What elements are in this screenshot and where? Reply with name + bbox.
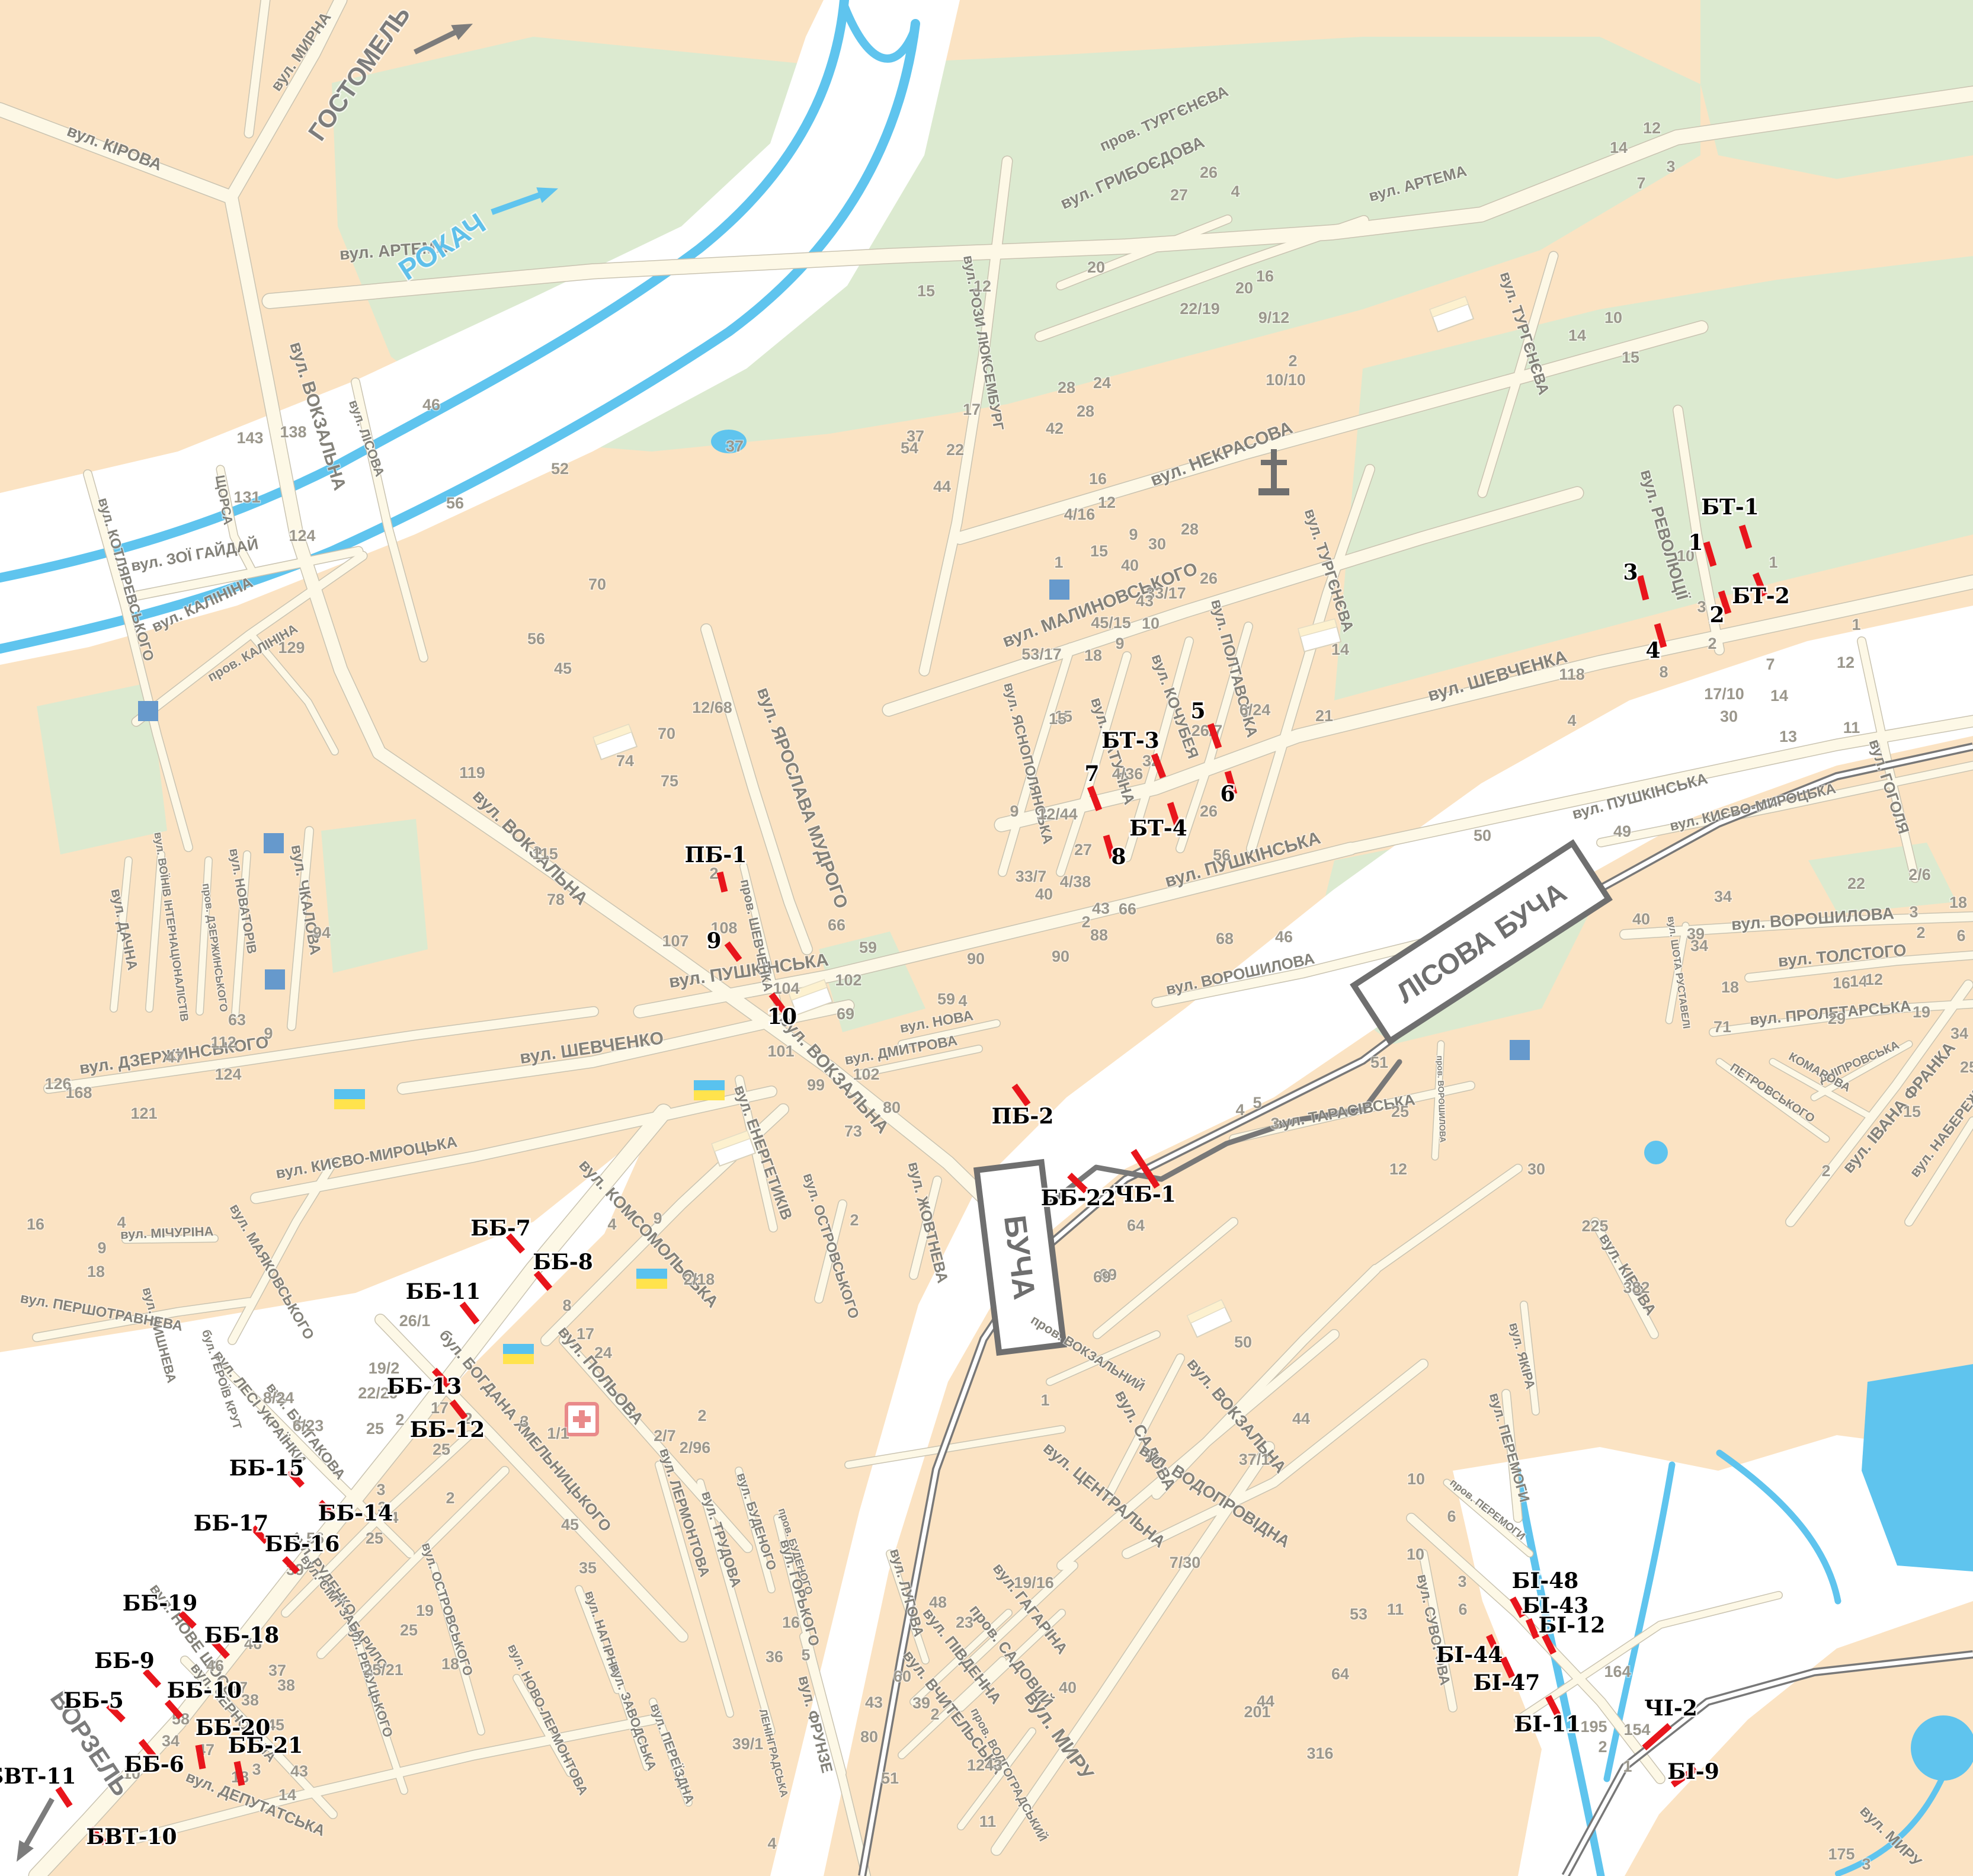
house-number: 14 [278, 1786, 296, 1804]
house-number: 18 [87, 1263, 105, 1280]
billboard-marker-label-ББ-10: ББ-10 [167, 1678, 242, 1703]
billboard-marker-label-БТ-1: БТ-1 [1701, 495, 1759, 520]
house-number: 3 [1458, 1573, 1466, 1590]
house-number: 102 [853, 1065, 879, 1083]
billboard-marker-label-7: 7 [1084, 761, 1099, 786]
house-number: 25 [366, 1529, 383, 1547]
house-number: 2 [1916, 924, 1925, 942]
house-number: 43 [1136, 592, 1154, 610]
house-number: 3 [1697, 598, 1706, 616]
house-number: 4 [117, 1214, 126, 1231]
house-number: 56 [1213, 846, 1231, 864]
house-number: 3 [520, 1413, 529, 1430]
house-number: 14 [1568, 326, 1586, 344]
house-number: 225 [1581, 1217, 1608, 1235]
map-container: ЛІСОВА БУЧАБУЧАвул. МИРНАвул. КІРОВАвул.… [0, 0, 1973, 1876]
house-number: 18 [1084, 646, 1102, 664]
house-number: 30 [1720, 707, 1738, 725]
house-number: 107 [662, 932, 688, 950]
house-number: 39 [912, 1694, 930, 1712]
house-number: 6 [1458, 1600, 1467, 1618]
house-number: 94 [313, 924, 331, 942]
house-number: 1 [1054, 553, 1063, 571]
house-number: 73 [844, 1122, 862, 1140]
house-number: 3 [1862, 1855, 1870, 1873]
house-number: 131 [233, 488, 260, 506]
house-number: 37/1 [1239, 1451, 1270, 1468]
billboard-marker-label-2: 2 [1709, 603, 1724, 628]
pond-round [1911, 1715, 1973, 1781]
house-number: 9 [1129, 526, 1138, 543]
billboard-marker-dash-ПБ-1 [720, 872, 725, 892]
house-number: 9 [1115, 635, 1124, 652]
house-number: 78 [547, 891, 565, 908]
ukraine-flag-icon [334, 1089, 365, 1109]
house-number: 11 [979, 1813, 997, 1830]
house-number: 15 [1622, 348, 1639, 366]
house-number: 45 [554, 660, 572, 677]
house-number: 47 [166, 1048, 184, 1066]
billboard-marker-label-ББ-21: ББ-21 [228, 1733, 303, 1758]
billboard-marker-dash-ББ-21 [237, 1762, 242, 1785]
house-number: 2 [697, 1407, 706, 1424]
house-number: 3 [1666, 158, 1675, 175]
public-building-square [1049, 580, 1069, 600]
billboard-marker-label-ББ-22: ББ-22 [1041, 1186, 1116, 1211]
house-number: 36 [766, 1648, 783, 1666]
house-number: 154 [1623, 1721, 1650, 1739]
house-number: 22 [1847, 875, 1865, 892]
house-number: 15 [1903, 1103, 1921, 1121]
house-number: 1 [1769, 553, 1777, 571]
house-number: 99 [807, 1076, 825, 1094]
house-number: 9 [653, 1209, 662, 1227]
house-number: 25 [1960, 1058, 1973, 1076]
house-number: 44 [1292, 1410, 1310, 1427]
house-number: 4/16 [1064, 505, 1096, 523]
house-number: 195 [1580, 1718, 1607, 1736]
billboard-marker-label-ПБ-2: ПБ-2 [992, 1104, 1054, 1129]
house-number: 3 [376, 1481, 385, 1499]
house-number: 2 [850, 1211, 859, 1229]
house-number: 17 [431, 1399, 449, 1417]
house-number: 46 [1275, 928, 1293, 946]
house-number: 21 [1315, 707, 1333, 725]
house-number: 6 [1447, 1507, 1456, 1525]
house-number: 115 [532, 845, 558, 863]
house-number: 119 [459, 764, 485, 782]
house-number: 2/18 [684, 1270, 715, 1288]
house-number: 12 [1389, 1160, 1407, 1178]
house-number: 69 [837, 1005, 854, 1023]
house-number: 6 [1956, 927, 1965, 945]
house-number: 9 [97, 1239, 106, 1257]
house-number: 80 [883, 1099, 901, 1116]
house-number: 33/7 [1016, 867, 1047, 885]
house-number: 1 [1623, 1757, 1632, 1775]
house-number: 9 [264, 1025, 273, 1042]
ukraine-flag-icon [636, 1269, 667, 1289]
public-building-square [265, 969, 285, 990]
house-number: 19 [1913, 1003, 1930, 1021]
house-number: 11 [1843, 719, 1860, 737]
house-number: 40 [1121, 556, 1139, 574]
house-number: 2 [1708, 635, 1716, 652]
house-number: 56 [527, 630, 545, 648]
billboard-marker-label-БВТ-10: БВТ-10 [86, 1824, 177, 1849]
house-number: 7/30 [1170, 1554, 1201, 1571]
house-number: 4/36 [1112, 765, 1144, 783]
house-number: 20 [1235, 279, 1253, 297]
house-number: 10 [1407, 1545, 1424, 1563]
house-number: 4 [1567, 712, 1576, 729]
house-number: 15 [917, 282, 935, 300]
billboard-marker-label-БІ-44: БІ-44 [1436, 1643, 1503, 1667]
house-number: 201 [1244, 1703, 1270, 1721]
house-number: 70 [588, 575, 606, 593]
house-number: 69 [1093, 1268, 1111, 1286]
house-number: 68 [1216, 930, 1234, 947]
house-number: 16 [27, 1215, 44, 1233]
house-number: 54 [901, 439, 918, 457]
house-number: 43 [985, 1756, 1002, 1774]
house-number: 34 [1714, 888, 1732, 905]
park-west-2 [321, 819, 428, 973]
house-number: 27 [1170, 186, 1188, 204]
house-number: 17 [963, 401, 981, 418]
billboard-marker-label-6: 6 [1220, 782, 1235, 806]
house-number: 45/15 [1091, 614, 1131, 632]
billboard-marker-label-ББ-14: ББ-14 [318, 1501, 393, 1526]
house-number: 39/1 [732, 1735, 764, 1753]
house-number: 11 [1387, 1600, 1404, 1618]
billboard-marker-label-ББ-6: ББ-6 [124, 1752, 184, 1777]
house-number: 20 [1087, 258, 1105, 276]
house-number: 1/1 [547, 1424, 569, 1442]
house-number: 16 [782, 1614, 800, 1631]
house-number: 4 [607, 1215, 616, 1233]
billboard-marker-label-БІ-47: БІ-47 [1474, 1670, 1540, 1695]
house-number: 24 [594, 1344, 612, 1362]
house-number: 1 [1852, 616, 1860, 633]
house-number: 24 [1093, 374, 1111, 392]
billboard-marker-dash-ББ-20 [198, 1745, 203, 1769]
billboard-marker-label-ББ-7: ББ-7 [470, 1216, 531, 1241]
house-number: 53/17 [1021, 645, 1062, 663]
house-number: 63 [228, 1011, 246, 1029]
house-number: 7 [1636, 174, 1645, 192]
house-number: 34 [162, 1732, 180, 1750]
house-number: 48 [929, 1593, 947, 1611]
billboard-marker-label-ББ-5: ББ-5 [63, 1688, 124, 1713]
house-number: 12 [967, 1756, 985, 1774]
house-number: 25 [366, 1420, 384, 1438]
house-number: 59 [859, 939, 877, 956]
house-number: 53 [1350, 1605, 1367, 1623]
billboard-marker-label-ББ-18: ББ-18 [204, 1623, 280, 1648]
house-number: 25/21 [363, 1661, 403, 1679]
house-number: 28 [1181, 520, 1199, 538]
house-number: 143 [236, 429, 263, 447]
house-number: 104 [773, 979, 799, 997]
house-number: 40 [1059, 1679, 1077, 1696]
house-number: 2/7 [654, 1427, 676, 1445]
billboard-marker-label-ББ-15: ББ-15 [229, 1456, 305, 1481]
house-number: 10 [1407, 1470, 1425, 1488]
house-number: 124 [214, 1065, 241, 1083]
billboard-marker-label-БВТ-11: БВТ-11 [0, 1764, 76, 1789]
house-number: 56 [446, 494, 464, 512]
house-number: 46 [206, 1657, 224, 1675]
bucha-city-map: ЛІСОВА БУЧАБУЧАвул. МИРНАвул. КІРОВАвул.… [0, 0, 1973, 1876]
house-number: 3 [252, 1760, 261, 1778]
house-number: 10/10 [1266, 371, 1306, 389]
house-number: 43 [290, 1762, 308, 1780]
house-number: 4 [1235, 1101, 1244, 1119]
house-number: 4/38 [1060, 873, 1091, 891]
house-number: 66 [828, 916, 845, 934]
house-number: 12 [1837, 654, 1855, 671]
house-number: 7 [1766, 655, 1775, 673]
public-building-square [138, 701, 158, 721]
house-number: 118 [1559, 665, 1585, 683]
billboard-marker-label-БТ-4: БТ-4 [1129, 816, 1187, 841]
house-number: 16 [1256, 267, 1274, 285]
house-number: 138 [280, 423, 306, 441]
house-number: 42 [1046, 420, 1064, 437]
house-number: 25 [1391, 1103, 1409, 1121]
house-number: 102 [835, 971, 861, 989]
house-number: 168 [65, 1084, 92, 1102]
house-number: 25 [400, 1621, 418, 1639]
house-number: 90 [1052, 947, 1069, 965]
billboard-marker-label-БІ-9: БІ-9 [1667, 1759, 1719, 1784]
hospital-icon [566, 1404, 597, 1435]
billboard-marker-label-1: 1 [1688, 530, 1703, 555]
house-number: 64 [1127, 1216, 1145, 1234]
house-number: 26 [1200, 569, 1218, 587]
house-number: 35 [579, 1559, 597, 1577]
house-number: 2 [1288, 352, 1297, 370]
house-number: 12 [1865, 971, 1883, 988]
house-number: 164 [1604, 1663, 1631, 1680]
house-number: 26 [1200, 802, 1218, 820]
house-number: 15 [1090, 542, 1108, 560]
house-number: 22/19 [1180, 300, 1220, 318]
house-number: 2 [930, 1705, 939, 1723]
house-number: 14 [1331, 641, 1349, 658]
billboard-marker-label-ББ-9: ББ-9 [94, 1648, 155, 1673]
house-number: 51 [881, 1769, 899, 1787]
house-number: 4 [1231, 183, 1239, 200]
house-number: 38 [241, 1691, 259, 1709]
pond-small [1644, 1141, 1668, 1164]
house-number: 64 [1331, 1665, 1349, 1683]
house-number: 12 [1098, 494, 1116, 511]
house-number: 14 [1610, 139, 1628, 156]
house-number: 75 [661, 772, 678, 790]
house-number: 121 [130, 1105, 157, 1122]
ukraine-flag-icon [503, 1344, 534, 1364]
public-building-square [264, 833, 284, 853]
house-number: 18 [1949, 894, 1967, 911]
billboard-marker-label-10: 10 [767, 1004, 797, 1029]
house-number: 66 [1119, 900, 1136, 918]
house-number: 28 [1058, 379, 1075, 396]
house-number: 12/68 [692, 699, 732, 716]
house-number: 2/96 [680, 1439, 711, 1456]
house-number: 26/1 [399, 1312, 431, 1330]
house-number: 129 [278, 639, 305, 657]
house-number: 2/6 [1908, 866, 1931, 883]
billboard-marker-label-ПБ-1: ПБ-1 [685, 843, 747, 867]
public-building-square [1510, 1040, 1530, 1060]
house-number: 43 [865, 1693, 883, 1711]
house-number: 15 [1049, 710, 1066, 728]
billboard-marker-label-5: 5 [1190, 699, 1205, 723]
house-number: 59 [937, 990, 955, 1008]
house-number: 2 [446, 1489, 454, 1507]
house-number: 17 [576, 1325, 594, 1343]
house-number: 1 [1040, 1391, 1049, 1409]
house-number: 88 [1090, 926, 1108, 944]
house-number: 28 [1077, 402, 1094, 420]
house-number: 13 [1779, 728, 1797, 745]
house-number: 9 [1010, 802, 1018, 820]
billboard-marker-label-ББ-8: ББ-8 [533, 1250, 593, 1275]
billboard-marker-label-ББ-12: ББ-12 [410, 1417, 485, 1442]
house-number: 37 [726, 437, 744, 455]
house-number: 30 [1527, 1160, 1545, 1178]
billboard-marker-label-ЧБ-1: ЧБ-1 [1114, 1182, 1176, 1207]
billboard-marker-label-ЧІ-2: ЧІ-2 [1644, 1696, 1697, 1721]
billboard-marker-label-3: 3 [1623, 560, 1638, 585]
house-number: 175 [1828, 1845, 1855, 1863]
house-number: 382 [1623, 1279, 1649, 1296]
house-number: 12/44 [1037, 805, 1078, 823]
house-number: 52 [551, 460, 569, 478]
house-number: 40 [1632, 910, 1650, 928]
house-number: 46 [422, 396, 440, 414]
billboard-marker-label-ББ-16: ББ-16 [265, 1532, 340, 1557]
house-number: 5 [1253, 1094, 1261, 1112]
house-number: 90 [967, 950, 985, 968]
house-number: 8 [1659, 663, 1668, 681]
billboard-marker-label-9: 9 [706, 929, 721, 953]
house-number: 71 [1713, 1018, 1731, 1036]
house-number: 112 [210, 1033, 236, 1051]
billboard-marker-label-ББ-11: ББ-11 [406, 1279, 481, 1304]
billboard-marker-label-БІ-11: БІ-11 [1514, 1712, 1581, 1737]
house-number: 16 [1089, 470, 1107, 488]
house-number: 17/10 [1704, 685, 1744, 703]
house-number: 74 [616, 752, 634, 770]
ukraine-flag-icon [694, 1080, 725, 1100]
billboard-marker-label-4: 4 [1645, 638, 1660, 663]
billboard-marker-label-БІ-48: БІ-48 [1512, 1568, 1579, 1593]
house-number: 2 [1598, 1738, 1607, 1756]
house-number: 50 [1474, 827, 1491, 844]
house-number: 316 [1306, 1744, 1333, 1762]
house-number: 27 [1074, 841, 1092, 859]
house-number: 34 [1690, 937, 1708, 955]
house-number: 23 [956, 1614, 973, 1631]
billboard-marker-label-БТ-2: БТ-2 [1732, 584, 1790, 609]
house-number: 22 [946, 441, 964, 459]
house-number: 101 [767, 1042, 794, 1060]
house-number: 12 [973, 277, 991, 295]
house-number: 19/16 [1014, 1574, 1054, 1592]
park-north-east [1700, 0, 1973, 179]
house-number: 12 [1643, 119, 1661, 137]
house-number: 6/23 [293, 1417, 324, 1435]
house-number: 45 [561, 1516, 579, 1534]
house-number: 2 [395, 1411, 404, 1429]
house-number: 6/24 [1239, 701, 1271, 719]
house-number: 2 [1081, 913, 1090, 931]
house-number: 34 [1950, 1025, 1968, 1042]
house-number: 10 [1142, 614, 1160, 632]
billboard-marker-label-8: 8 [1111, 844, 1126, 869]
house-number: 30 [1148, 535, 1166, 553]
billboard-marker-label-БІ-12: БІ-12 [1539, 1613, 1606, 1638]
house-number: 8/24 [263, 1389, 294, 1407]
house-number: 38 [277, 1676, 295, 1694]
house-number: 4 [767, 1835, 776, 1852]
billboard-marker-label-БТ-3: БТ-3 [1101, 728, 1160, 753]
house-number: 5 [801, 1646, 810, 1664]
house-number: 16 [1833, 974, 1850, 992]
house-number: 49 [1613, 822, 1631, 840]
house-number: 124 [289, 527, 315, 545]
house-number: 3 [1270, 1115, 1279, 1132]
house-number: 18 [1721, 978, 1739, 996]
house-number: 14 [1770, 687, 1788, 705]
house-number: 44 [933, 478, 951, 495]
house-number: 43 [1092, 899, 1110, 917]
house-number: 2 [1821, 1162, 1830, 1180]
house-number: 9/12 [1258, 309, 1290, 326]
house-number: 26 [1200, 164, 1218, 181]
house-number: 60 [893, 1667, 911, 1685]
house-number: 80 [860, 1728, 878, 1746]
billboard-marker-label-ББ-19: ББ-19 [123, 1591, 198, 1616]
house-number: 18 [441, 1655, 459, 1673]
house-number: 10 [1604, 309, 1622, 326]
house-number: 3 [1909, 903, 1918, 921]
billboard-marker-label-ББ-13: ББ-13 [387, 1374, 462, 1399]
billboard-marker-label-ББ-17: ББ-17 [194, 1511, 269, 1536]
house-number: 40 [1035, 885, 1053, 903]
house-number: 51 [1370, 1054, 1388, 1071]
house-number: 70 [658, 725, 675, 742]
house-number: 25 [433, 1440, 450, 1458]
house-number: 4 [958, 992, 967, 1010]
house-number: 19 [416, 1602, 434, 1619]
house-number: 50 [1234, 1333, 1252, 1351]
house-number: 8 [562, 1296, 571, 1314]
house-number: 29 [1828, 1010, 1846, 1027]
